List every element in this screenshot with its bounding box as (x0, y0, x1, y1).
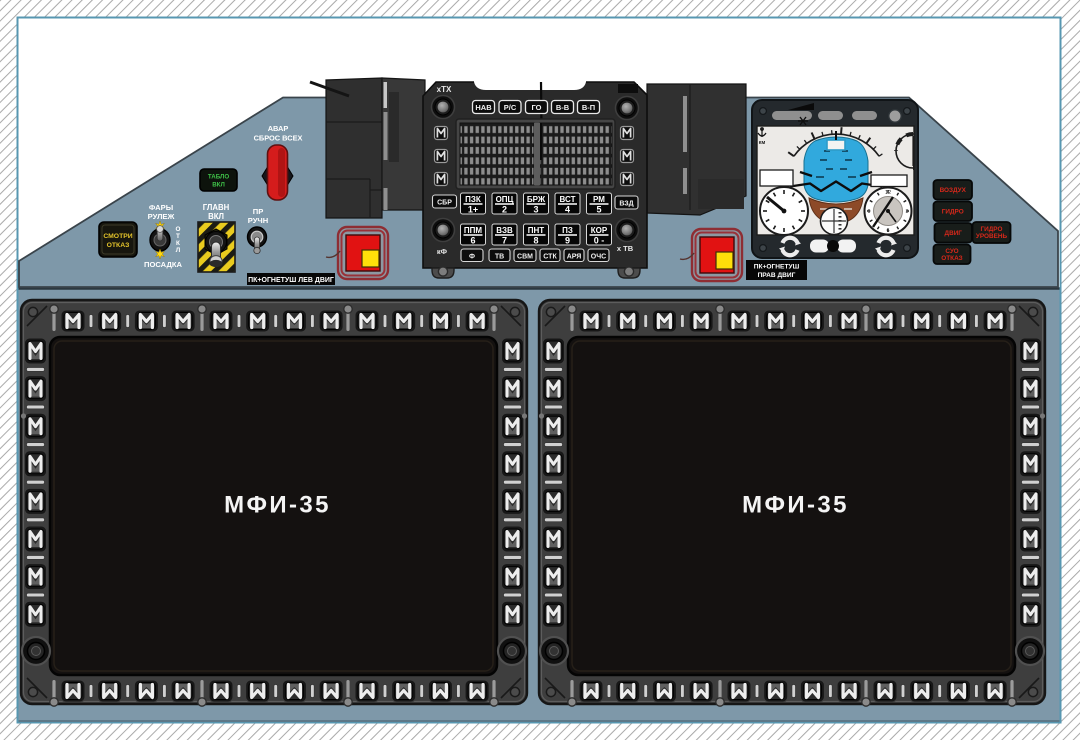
svg-text:Л: Л (176, 247, 181, 254)
svg-text:СВМ: СВМ (517, 254, 533, 261)
svg-text:4: 4 (565, 205, 570, 215)
svg-text:7: 7 (502, 236, 507, 246)
svg-text:1+: 1+ (468, 205, 478, 215)
svg-text:УРОВЕНЬ: УРОВЕНЬ (976, 233, 1008, 240)
svg-text:КОР: КОР (591, 226, 608, 235)
svg-text:ПНТ: ПНТ (528, 226, 545, 235)
svg-text:ГИДРО: ГИДРО (981, 226, 1003, 233)
svg-text:ГИДРО: ГИДРО (942, 208, 964, 215)
svg-text:НАВ: НАВ (475, 103, 492, 112)
svg-text:СУО: СУО (945, 248, 958, 255)
svg-text:О: О (176, 226, 181, 233)
svg-text:6: 6 (470, 236, 475, 246)
svg-text:АВАР: АВАР (268, 124, 289, 133)
svg-text:В-В: В-В (556, 103, 570, 112)
svg-text:9: 9 (565, 236, 570, 246)
svg-text:ПЗК: ПЗК (465, 195, 481, 204)
svg-text:ОЧС: ОЧС (591, 254, 606, 261)
svg-text:АРЯ: АРЯ (567, 254, 582, 261)
svg-text:РУЛЕЖ: РУЛЕЖ (148, 212, 175, 221)
svg-text:ГЛАВН: ГЛАВН (203, 203, 230, 212)
svg-text:СТК: СТК (543, 254, 557, 261)
svg-text:СБР: СБР (437, 200, 452, 207)
svg-text:ПР: ПР (253, 207, 264, 216)
svg-text:МФИ-35: МФИ-35 (224, 492, 331, 519)
svg-text:ФАРЫ: ФАРЫ (149, 203, 173, 212)
svg-text:Р/С: Р/С (504, 103, 517, 112)
svg-text:8: 8 (533, 236, 538, 246)
svg-text:ОТКАЗ: ОТКАЗ (941, 255, 962, 262)
svg-text:Ф: Ф (469, 254, 475, 261)
svg-text:6: 6 (886, 228, 889, 234)
svg-text:Т: Т (176, 233, 180, 240)
svg-text:ОПЦ: ОПЦ (496, 195, 514, 204)
svg-text:ПК+ОГНЕТУШ: ПК+ОГНЕТУШ (754, 264, 800, 271)
svg-text:ПЗ: ПЗ (562, 226, 573, 235)
svg-text:х ТВ: х ТВ (617, 244, 634, 253)
svg-text:РУЧН: РУЧН (248, 216, 269, 225)
svg-text:ПК+ОГНЕТУШ ЛЕВ ДВИГ: ПК+ОГНЕТУШ ЛЕВ ДВИГ (248, 277, 334, 284)
svg-text:МФИ-35: МФИ-35 (742, 492, 849, 519)
svg-text:СМОТРИ: СМОТРИ (103, 233, 132, 240)
svg-text:ВЗД: ВЗД (619, 201, 633, 208)
svg-text:ВСТ: ВСТ (560, 195, 576, 204)
svg-text:3: 3 (905, 209, 908, 215)
svg-text:БРЖ: БРЖ (527, 195, 546, 204)
svg-text:5: 5 (596, 205, 601, 215)
svg-text:3: 3 (533, 205, 538, 215)
svg-text:0 -: 0 - (594, 236, 605, 246)
svg-text:В-П: В-П (582, 103, 595, 112)
svg-text:СБРОС ВСЕХ: СБРОС ВСЕХ (254, 134, 303, 143)
svg-text:ПОСАДКА: ПОСАДКА (144, 260, 182, 269)
svg-text:ТВ: ТВ (495, 254, 504, 261)
svg-text:ППМ: ППМ (464, 226, 483, 235)
svg-text:ГО: ГО (532, 103, 542, 112)
svg-text:хТХ: хТХ (437, 85, 452, 94)
svg-text:ПРАВ ДВИГ: ПРАВ ДВИГ (758, 272, 796, 279)
svg-text:ВКЛ: ВКЛ (212, 182, 225, 189)
svg-text:РМ: РМ (593, 195, 605, 204)
svg-text:КМ: КМ (759, 140, 766, 145)
svg-text:кФ: кФ (437, 247, 448, 256)
svg-text:ОТКАЗ: ОТКАЗ (107, 242, 130, 249)
svg-text:ТАБЛО: ТАБЛО (208, 174, 229, 181)
svg-text:12: 12 (885, 190, 891, 196)
svg-text:ВЗВ: ВЗВ (496, 226, 513, 235)
svg-text:9: 9 (867, 209, 870, 215)
svg-text:ВКЛ: ВКЛ (208, 212, 224, 221)
svg-text:ВОЗДУХ: ВОЗДУХ (940, 187, 967, 194)
svg-text:ДВИГ: ДВИГ (945, 230, 963, 237)
svg-text:К: К (176, 240, 180, 247)
svg-text:2: 2 (502, 205, 507, 215)
